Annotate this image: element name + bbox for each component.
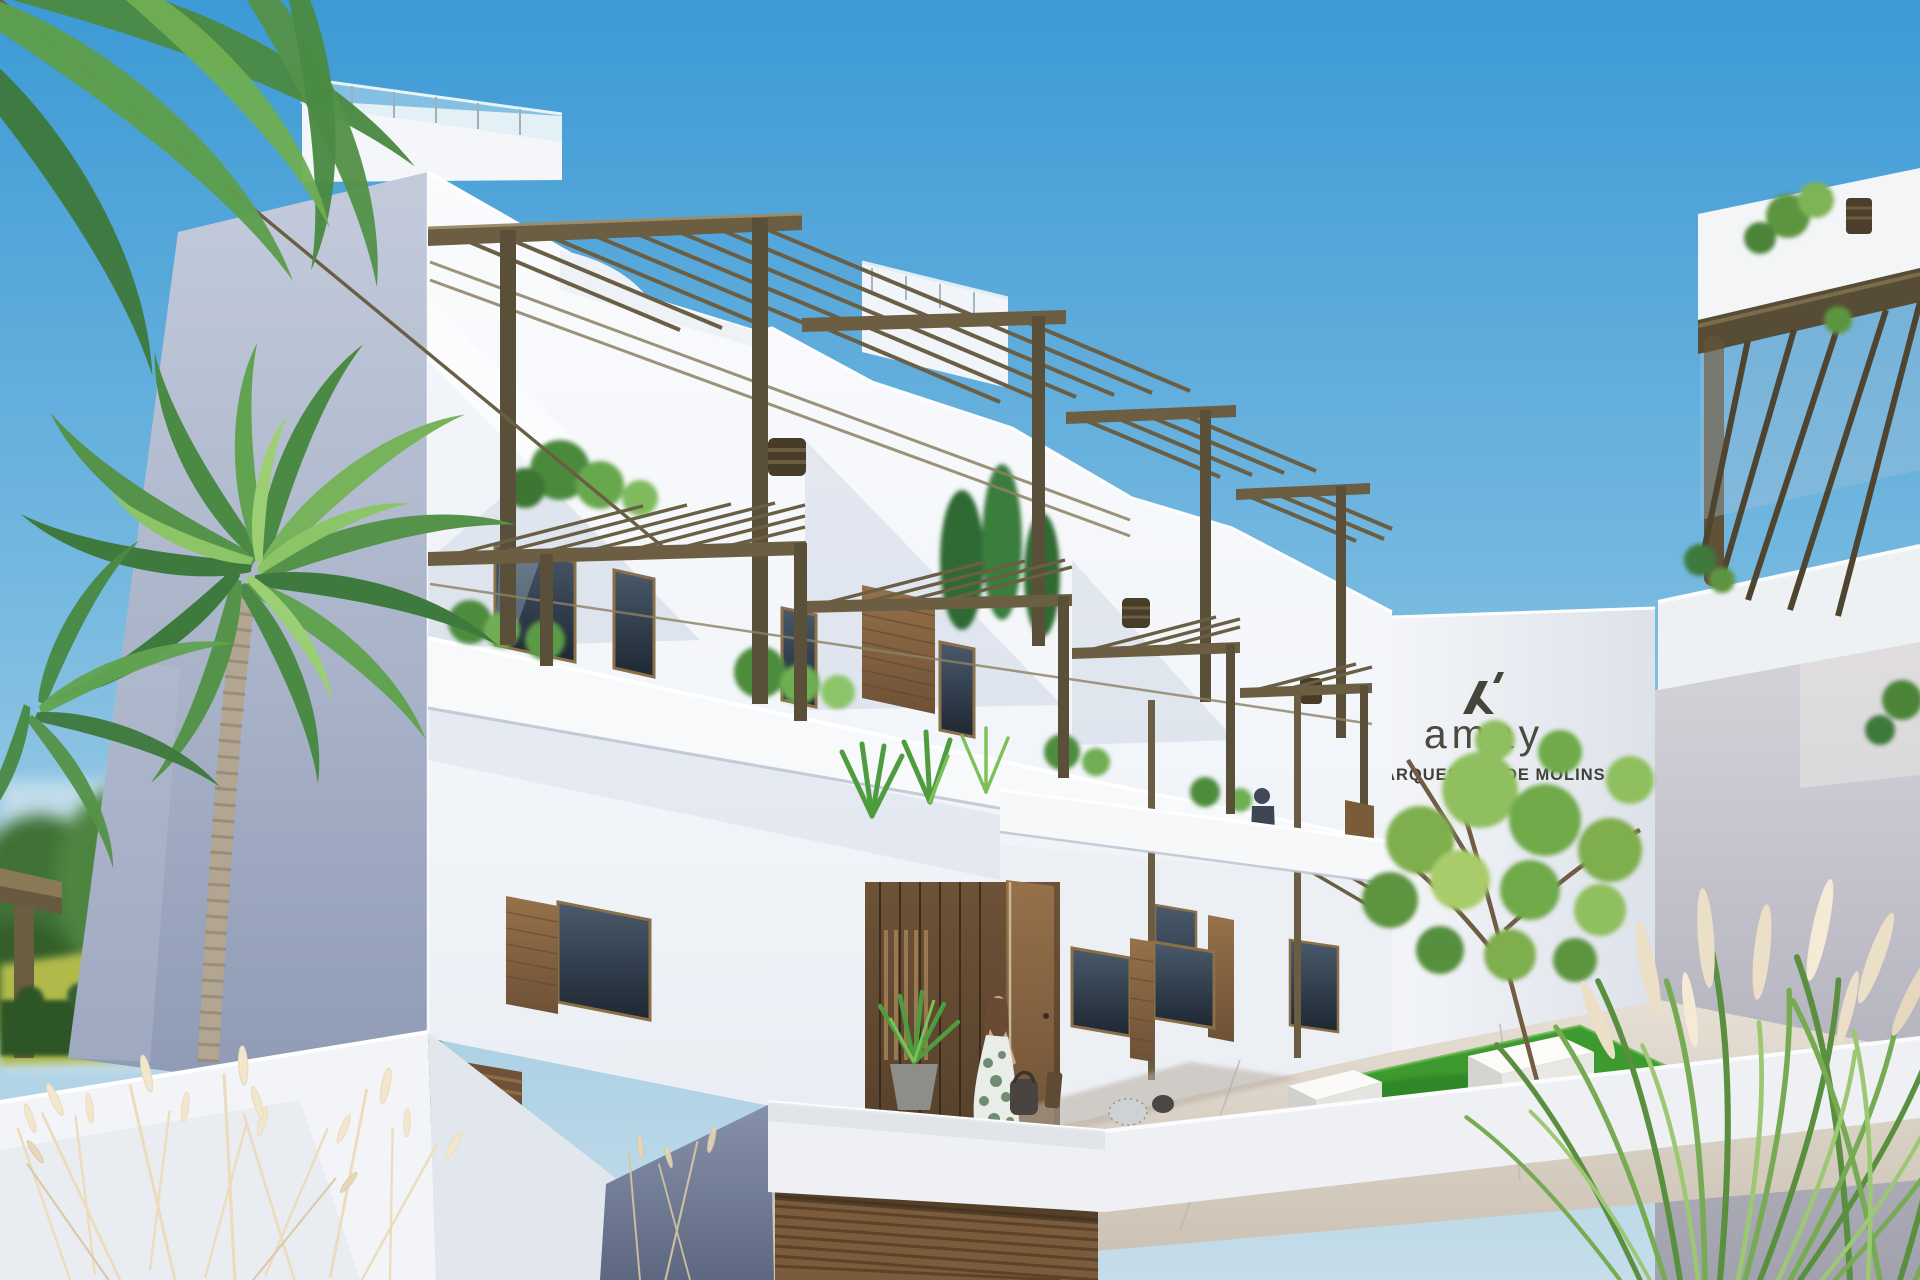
- right-chimney: [1846, 198, 1872, 234]
- architectural-render: amay MARQUESADO DE MOLINS: [0, 0, 1920, 1280]
- handbag: [1010, 1079, 1038, 1115]
- ground-window-left: [558, 902, 650, 1020]
- ground-window-2: [1154, 942, 1214, 1028]
- ground-window-1: [1072, 948, 1130, 1036]
- walkway-column-2: [1294, 692, 1301, 1058]
